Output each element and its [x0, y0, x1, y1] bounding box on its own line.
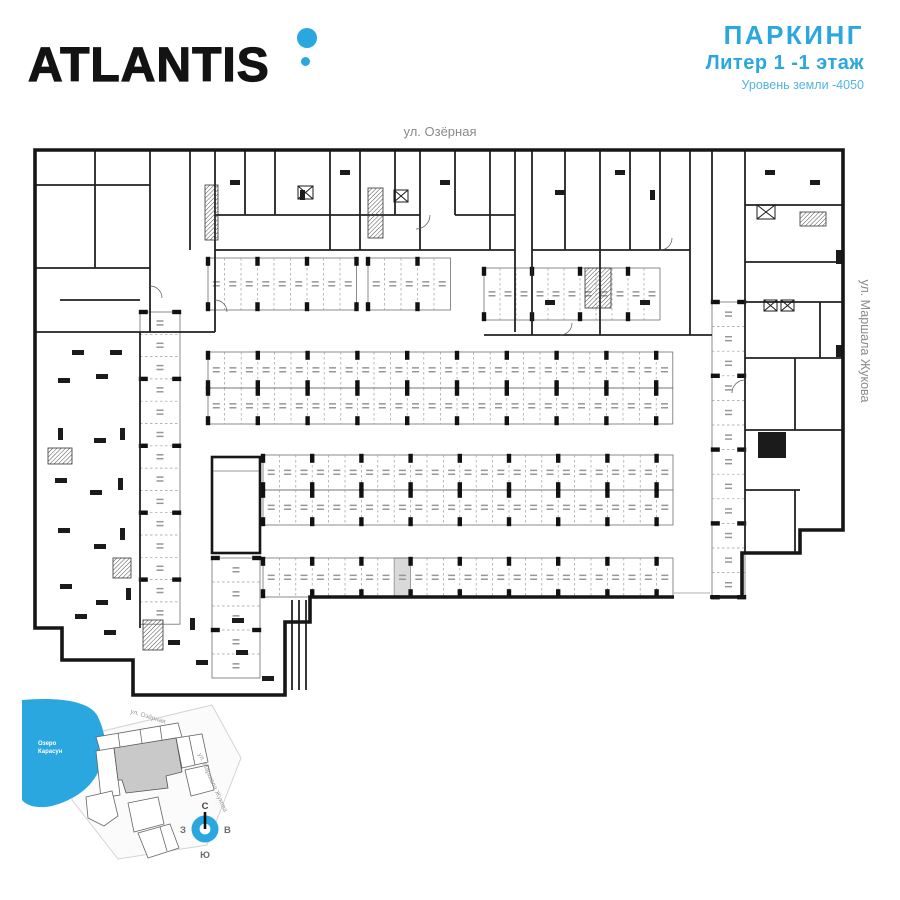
elevator-icon [394, 190, 408, 202]
parking-stall[interactable] [457, 388, 474, 424]
parking-stall[interactable] [427, 490, 443, 525]
parking-stall[interactable] [591, 558, 607, 597]
parking-stall[interactable] [424, 352, 441, 388]
parking-stall[interactable] [378, 558, 394, 597]
parking-stall[interactable] [575, 558, 591, 597]
parking-stall[interactable] [474, 388, 491, 424]
parking-stall[interactable] [493, 558, 509, 597]
parking-stall[interactable] [484, 268, 500, 320]
parking-stall[interactable] [391, 388, 408, 424]
parking-stall[interactable] [312, 558, 328, 597]
parking-stall[interactable] [493, 490, 509, 525]
parking-stall[interactable] [291, 352, 308, 388]
parking-stall[interactable] [308, 352, 325, 388]
parking-stall[interactable] [557, 352, 574, 388]
parking-stall[interactable] [460, 558, 476, 597]
parking-stall[interactable] [624, 455, 640, 490]
parking-stall[interactable] [624, 490, 640, 525]
parking-stall[interactable] [394, 455, 410, 490]
elevator-icon [757, 205, 775, 219]
parking-stall[interactable] [258, 352, 275, 388]
parking-stall[interactable] [225, 258, 242, 310]
parking-stall[interactable] [329, 558, 345, 597]
parking-stall[interactable] [212, 558, 260, 582]
parking-stall[interactable] [212, 654, 260, 678]
parking-stall[interactable] [258, 258, 275, 310]
parking-stall[interactable] [542, 558, 558, 597]
parking-stall[interactable] [308, 388, 325, 424]
parking-stall[interactable] [140, 513, 180, 535]
parking-stall[interactable] [640, 388, 657, 424]
parking-stall[interactable] [140, 334, 180, 356]
parking-stall[interactable] [274, 258, 291, 310]
parking-stall-row [366, 257, 451, 311]
parking-stall[interactable] [394, 490, 410, 525]
parking-stall[interactable] [540, 352, 557, 388]
parking-stall[interactable] [258, 388, 275, 424]
parking-stall-row [206, 387, 673, 425]
parking-stall[interactable] [140, 446, 180, 468]
page: { "logo": { "text": "ATLANTIS" }, "heade… [0, 0, 900, 900]
parking-stall[interactable] [263, 455, 279, 490]
parking-stall[interactable] [241, 258, 258, 310]
parking-stall[interactable] [712, 327, 745, 352]
compass-east-label: В [224, 825, 231, 836]
street-label-right: ул. Маршала Жукова [858, 279, 872, 402]
parking-stall[interactable] [312, 455, 328, 490]
parking-stall[interactable] [274, 352, 291, 388]
parking-stall[interactable] [476, 558, 492, 597]
compass-west-label: З [180, 825, 186, 836]
parking-stall[interactable] [443, 455, 459, 490]
parking-stall[interactable] [418, 258, 435, 310]
parking-stall[interactable] [407, 352, 424, 388]
parking-stall[interactable] [411, 455, 427, 490]
parking-stall[interactable] [329, 455, 345, 490]
parking-stall[interactable] [606, 352, 623, 388]
parking-stall[interactable] [208, 352, 225, 388]
parking-stall[interactable] [712, 425, 745, 450]
parking-stall[interactable] [241, 352, 258, 388]
parking-stall[interactable] [341, 388, 358, 424]
parking-stall[interactable] [612, 268, 628, 320]
parking-stall[interactable] [575, 455, 591, 490]
parking-stall[interactable] [590, 388, 607, 424]
parking-stall[interactable] [591, 455, 607, 490]
parking-stall[interactable] [434, 258, 451, 310]
parking-stall[interactable] [606, 388, 623, 424]
parking-stall[interactable] [640, 352, 657, 388]
parking-stall[interactable] [361, 490, 377, 525]
parking-stall[interactable] [279, 558, 295, 597]
parking-stall[interactable] [312, 490, 328, 525]
parking-stall[interactable] [525, 558, 541, 597]
parking-stall[interactable] [279, 490, 295, 525]
parking-stall[interactable] [507, 352, 524, 388]
parking-stall[interactable] [558, 490, 574, 525]
parking-stall[interactable] [712, 302, 745, 327]
parking-stall[interactable] [640, 455, 656, 490]
parking-stall[interactable] [341, 352, 358, 388]
parking-stall[interactable] [140, 379, 180, 401]
parking-stall[interactable] [424, 388, 441, 424]
parking-stall[interactable] [516, 268, 532, 320]
parking-stall-row [139, 310, 181, 624]
parking-stall[interactable] [361, 455, 377, 490]
parking-stall[interactable] [140, 424, 180, 446]
parking-stall[interactable] [542, 490, 558, 525]
parking-stall[interactable] [548, 268, 564, 320]
parking-stall-row [261, 454, 673, 491]
parking-stall[interactable] [361, 558, 377, 597]
parking-stall[interactable] [140, 535, 180, 557]
parking-stall-row [206, 351, 673, 389]
parking-stall[interactable] [140, 357, 180, 379]
parking-stall[interactable] [225, 388, 242, 424]
parking-stall-row [261, 557, 673, 598]
lake-name-line2: Карасун [38, 749, 63, 755]
ramp-room [212, 457, 260, 553]
parking-stall[interactable] [624, 558, 640, 597]
parking-stall[interactable] [427, 455, 443, 490]
parking-stall[interactable] [644, 268, 660, 320]
parking-stall[interactable] [640, 558, 656, 597]
parking-stall[interactable] [427, 558, 443, 597]
parking-stall[interactable] [401, 258, 418, 310]
parking-stall[interactable] [208, 388, 225, 424]
parking-stall[interactable] [712, 499, 745, 524]
parking-stall[interactable] [368, 258, 385, 310]
parking-stall-selected[interactable] [394, 558, 410, 597]
parking-stall[interactable] [656, 352, 673, 388]
lake-name-line1: Озеро [38, 741, 57, 747]
parking-stall[interactable] [509, 455, 525, 490]
parking-stall[interactable] [532, 268, 548, 320]
parking-stall[interactable] [345, 490, 361, 525]
parking-stall[interactable] [564, 268, 580, 320]
parking-stall[interactable] [523, 352, 540, 388]
parking-stall[interactable] [374, 352, 391, 388]
parking-stall[interactable] [523, 388, 540, 424]
parking-stall[interactable] [525, 490, 541, 525]
parking-stall[interactable] [296, 455, 312, 490]
parking-stall[interactable] [657, 490, 673, 525]
compass-north-label: С [202, 801, 209, 812]
parking-stall[interactable] [657, 455, 673, 490]
parking-stall[interactable] [263, 490, 279, 525]
parking-stall[interactable] [590, 352, 607, 388]
parking-stall[interactable] [460, 455, 476, 490]
parking-stall[interactable] [712, 450, 745, 475]
parking-stall[interactable] [607, 558, 623, 597]
parking-stall[interactable] [140, 401, 180, 423]
parking-stall[interactable] [329, 490, 345, 525]
parking-stall[interactable] [500, 268, 516, 320]
parking-stall[interactable] [345, 455, 361, 490]
parking-stall[interactable] [140, 490, 180, 512]
parking-stall[interactable] [357, 388, 374, 424]
parking-stall[interactable] [212, 582, 260, 606]
parking-stall[interactable] [324, 388, 341, 424]
parking-stall[interactable] [575, 490, 591, 525]
parking-stall[interactable] [712, 376, 745, 401]
parking-stall[interactable] [607, 490, 623, 525]
parking-stall[interactable] [296, 558, 312, 597]
parking-stall-row [261, 489, 673, 526]
parking-stall[interactable] [345, 558, 361, 597]
parking-stall[interactable] [443, 490, 459, 525]
parking-stall[interactable] [607, 455, 623, 490]
parking-stall[interactable] [324, 258, 341, 310]
parking-stall[interactable] [656, 388, 673, 424]
parking-stall[interactable] [558, 558, 574, 597]
parking-stall[interactable] [378, 490, 394, 525]
parking-stall[interactable] [279, 455, 295, 490]
parking-stall[interactable] [140, 468, 180, 490]
parking-stall[interactable] [296, 490, 312, 525]
parking-stall[interactable] [542, 455, 558, 490]
parking-stall[interactable] [573, 352, 590, 388]
parking-stall[interactable] [340, 258, 357, 310]
parking-stall[interactable] [525, 455, 541, 490]
parking-stall[interactable] [440, 352, 457, 388]
parking-stall[interactable] [374, 388, 391, 424]
parking-stall[interactable] [263, 558, 279, 597]
parking-stall[interactable] [307, 258, 324, 310]
parking-stall[interactable] [140, 312, 180, 334]
parking-stall[interactable] [457, 352, 474, 388]
parking-stall[interactable] [712, 351, 745, 376]
parking-stall[interactable] [490, 388, 507, 424]
parking-stall[interactable] [490, 352, 507, 388]
parking-stall[interactable] [324, 352, 341, 388]
parking-stall[interactable] [440, 388, 457, 424]
parking-stall[interactable] [391, 352, 408, 388]
parking-stall[interactable] [407, 388, 424, 424]
parking-stall[interactable] [623, 352, 640, 388]
parking-stall[interactable] [140, 580, 180, 602]
parking-stall[interactable] [291, 258, 308, 310]
floor-plan-canvas: ул. Озёрная ул. Маршала Жукова [0, 0, 900, 900]
parking-stall-row [482, 267, 660, 321]
parking-stall[interactable] [476, 455, 492, 490]
parking-stall[interactable] [443, 558, 459, 597]
parking-stall[interactable] [474, 352, 491, 388]
parking-stall[interactable] [540, 388, 557, 424]
parking-stall-row [211, 556, 261, 678]
parking-stall[interactable] [509, 490, 525, 525]
parking-stall[interactable] [657, 558, 673, 597]
compass-south-label: Ю [200, 850, 210, 861]
parking-stall[interactable] [573, 388, 590, 424]
parking-stall[interactable] [557, 388, 574, 424]
street-label-top: ул. Озёрная [403, 124, 476, 139]
parking-stall[interactable] [274, 388, 291, 424]
parking-stall[interactable] [509, 558, 525, 597]
parking-stall[interactable] [493, 455, 509, 490]
parking-stall[interactable] [623, 388, 640, 424]
parking-stall[interactable] [225, 352, 242, 388]
parking-stall[interactable] [357, 352, 374, 388]
parking-stall[interactable] [558, 455, 574, 490]
parking-stall[interactable] [712, 474, 745, 499]
parking-stall[interactable] [628, 268, 644, 320]
parking-stall[interactable] [507, 388, 524, 424]
parking-stall[interactable] [712, 523, 745, 548]
parking-stall[interactable] [378, 455, 394, 490]
parking-stall[interactable] [140, 557, 180, 579]
parking-stall[interactable] [385, 258, 402, 310]
parking-stall[interactable] [291, 388, 308, 424]
parking-stall[interactable] [712, 573, 745, 598]
parking-stall[interactable] [712, 548, 745, 573]
parking-stall[interactable] [476, 490, 492, 525]
parking-stall[interactable] [640, 490, 656, 525]
parking-stall[interactable] [591, 490, 607, 525]
parking-stall[interactable] [460, 490, 476, 525]
parking-stall[interactable] [241, 388, 258, 424]
parking-stall[interactable] [411, 490, 427, 525]
parking-stall[interactable] [712, 400, 745, 425]
parking-stall-row [206, 257, 359, 311]
parking-stall[interactable] [411, 558, 427, 597]
